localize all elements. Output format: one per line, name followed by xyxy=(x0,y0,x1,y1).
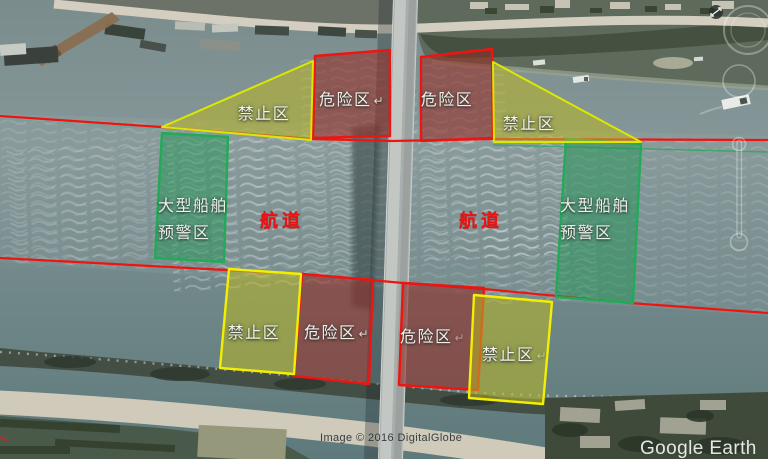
google-earth-watermark: Google Earth xyxy=(640,438,757,459)
label-danger-bottom-right: 危险区↵ xyxy=(400,330,466,346)
label-channel-left: 航道 xyxy=(260,207,304,233)
label-warning-left: 大型船舶 预警区 xyxy=(158,193,228,247)
compass-icon[interactable] xyxy=(709,5,723,19)
label-danger-top-right: 禁止区危险区 xyxy=(421,93,474,109)
google-earth-viewport[interactable]: 禁止区 危险区↵ 禁止区危险区 禁止区 大型船舶 预警区 大型船舶 预警区 航道… xyxy=(0,0,768,459)
label-prohibited-top-right: 禁止区 xyxy=(503,117,556,133)
label-prohibited-bottom-right: 禁止区↵ xyxy=(482,348,548,364)
return-mark-icon: ↵ xyxy=(454,331,466,345)
label-warning-right: 大型船舶 预警区 xyxy=(560,193,630,247)
zone-prohibited-bottom-left[interactable] xyxy=(220,269,301,374)
label-danger-top-left: 危险区↵ xyxy=(319,93,385,109)
label-channel-right: 航道 xyxy=(459,207,503,233)
label-prohibited-bottom-left: 禁止区 xyxy=(228,326,281,342)
return-mark-icon: ↵ xyxy=(373,94,385,108)
return-mark-icon: ↵ xyxy=(536,349,548,363)
satellite-map[interactable] xyxy=(0,0,768,459)
imagery-copyright: Image © 2016 DigitalGlobe xyxy=(320,432,462,444)
label-prohibited-top-left: 禁止区 xyxy=(238,107,291,123)
return-mark-icon: ↵ xyxy=(358,327,370,341)
label-danger-bottom-left: 危险区↵ xyxy=(304,326,370,342)
